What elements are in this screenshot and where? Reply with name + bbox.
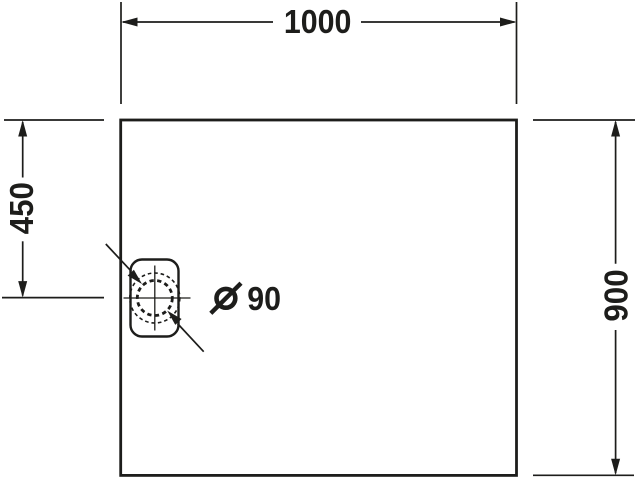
svg-text:450: 450 [3, 182, 40, 234]
svg-text:900: 900 [598, 269, 635, 321]
svg-text:90: 90 [247, 280, 281, 317]
svg-text:1000: 1000 [284, 3, 352, 40]
